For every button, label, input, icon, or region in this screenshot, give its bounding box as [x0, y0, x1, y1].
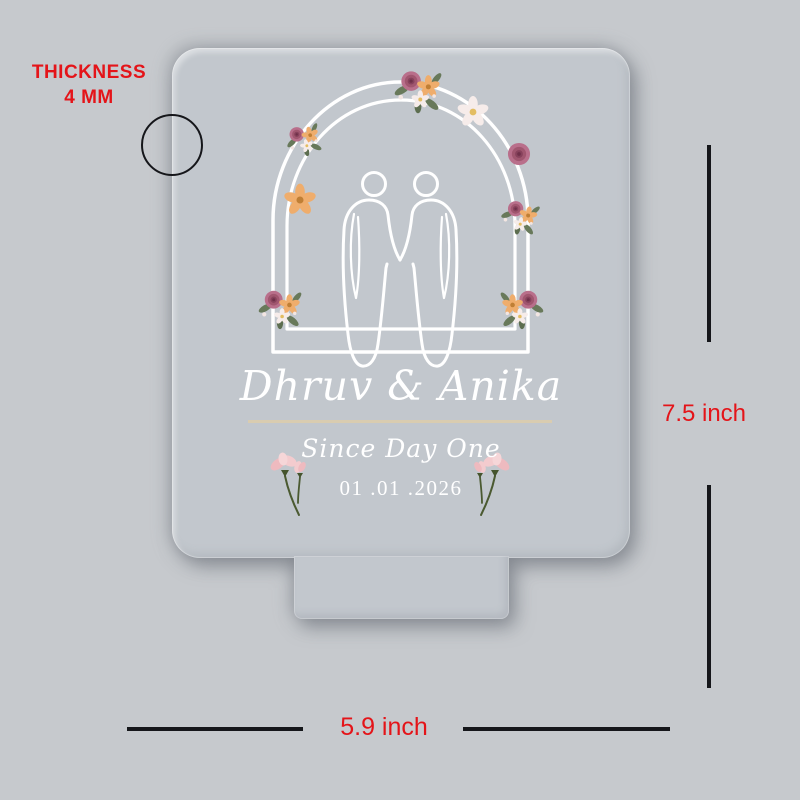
plaque-stand-tab	[294, 556, 509, 619]
height-dimension-line-top	[707, 145, 711, 342]
flower-cluster-icon	[257, 71, 544, 329]
floral-arch-icon	[273, 82, 528, 352]
couple-silhouette-icon	[343, 173, 457, 367]
tagline: Since Day One	[172, 434, 630, 463]
couple-names: Dhruv & Anika	[172, 362, 630, 410]
height-dimension-line-bottom	[707, 485, 711, 688]
plaque-body: Dhruv & Anika Since Day One 01 .01 .2026	[172, 48, 630, 558]
width-dimension-line-right	[463, 727, 670, 731]
width-dimension-line-left	[127, 727, 303, 731]
width-label: 5.9 inch	[324, 713, 444, 742]
name-divider	[248, 420, 552, 423]
anniversary-date: 01 .01 .2026	[172, 476, 630, 501]
thickness-label-line2: 4 MM	[64, 87, 114, 108]
thickness-label-line1: THICKNESS	[32, 62, 146, 83]
height-label: 7.5 inch	[648, 400, 760, 428]
thickness-circle-icon	[141, 114, 203, 176]
product-mockup-canvas: Dhruv & Anika Since Day One 01 .01 .2026…	[0, 0, 800, 800]
thickness-label: THICKNESS 4 MM	[10, 60, 168, 110]
